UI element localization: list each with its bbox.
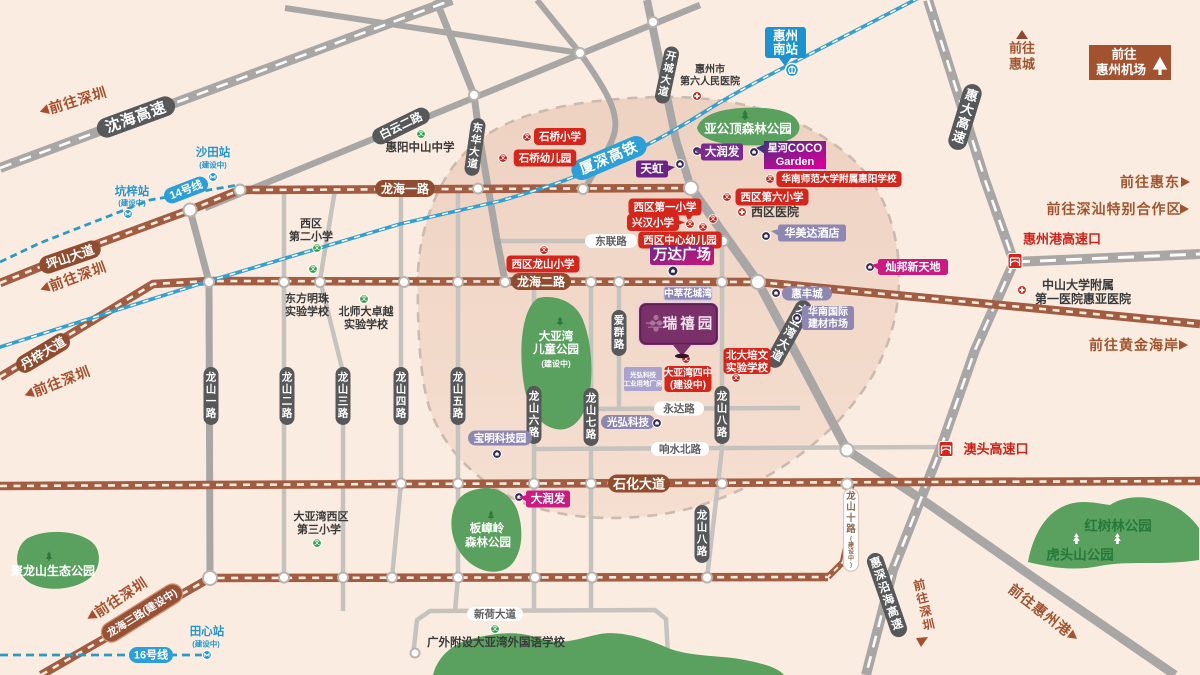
svg-text:山: 山 (586, 403, 597, 416)
svg-text:宝明科技园: 宝明科技园 (474, 432, 527, 445)
svg-text:七: 七 (586, 415, 597, 428)
svg-text:实验学校: 实验学校 (344, 317, 389, 331)
svg-text:永达路: 永达路 (662, 402, 695, 415)
svg-text:路: 路 (396, 406, 407, 419)
svg-text:(建设中): (建设中) (192, 639, 220, 649)
svg-text:西区龙山小学: 西区龙山小学 (512, 258, 575, 271)
svg-text:路: 路 (614, 337, 625, 350)
svg-text:第三小学: 第三小学 (297, 522, 341, 536)
svg-text:澳头高速口: 澳头高速口 (963, 442, 1028, 457)
svg-text:西区第六小学: 西区第六小学 (741, 191, 804, 204)
svg-text:光弘科技: 光弘科技 (606, 416, 649, 429)
svg-text:三: 三 (338, 395, 349, 407)
svg-text:路: 路 (586, 427, 597, 440)
svg-text:文: 文 (687, 219, 693, 227)
svg-text:爱: 爱 (614, 313, 625, 326)
svg-text:龙: 龙 (395, 370, 407, 383)
svg-text:(建设中): (建设中) (541, 359, 571, 369)
svg-text:文: 文 (724, 192, 730, 200)
svg-text:一: 一 (206, 395, 217, 407)
svg-text:华美达酒店: 华美达酒店 (785, 226, 840, 240)
svg-text:前往惠东: 前往惠东 (1120, 174, 1180, 190)
svg-text:龙: 龙 (528, 389, 540, 402)
svg-text:中: 中 (848, 554, 854, 562)
svg-text:四: 四 (396, 395, 407, 407)
svg-text:万达广场: 万达广场 (652, 246, 711, 264)
svg-text:路: 路 (338, 406, 349, 419)
svg-text:16号线: 16号线 (134, 648, 168, 662)
svg-text:工业用地厂房: 工业用地厂房 (624, 378, 664, 387)
svg-text:山: 山 (846, 501, 856, 513)
svg-text:聚龙山生态公园: 聚龙山生态公园 (10, 563, 95, 578)
svg-text:前往: 前往 (1111, 47, 1137, 62)
svg-text:龙: 龙 (205, 370, 217, 383)
svg-text:板嶂岭: 板嶂岭 (470, 521, 505, 535)
svg-text:西区: 西区 (300, 217, 322, 230)
svg-text:文: 文 (524, 132, 530, 140)
svg-text:前往深汕特别合作区: 前往深汕特别合作区 (1047, 201, 1182, 217)
svg-text:惠州: 惠州 (773, 28, 798, 43)
svg-text:山: 山 (717, 401, 728, 414)
svg-text:南站: 南站 (773, 42, 799, 57)
svg-text:森林公园: 森林公园 (465, 535, 511, 549)
svg-text:山: 山 (529, 401, 540, 414)
svg-text:西区第一小学: 西区第一小学 (634, 201, 697, 214)
svg-text:Garden: Garden (776, 156, 815, 168)
svg-text:): ) (850, 563, 852, 569)
svg-text:(: ( (850, 537, 852, 543)
svg-text:坑梓站: 坑梓站 (115, 184, 150, 198)
svg-text:八: 八 (696, 533, 708, 545)
svg-text:山: 山 (282, 382, 293, 395)
svg-text:龙海一路: 龙海一路 (381, 181, 430, 196)
svg-text:田心站: 田心站 (190, 624, 225, 638)
svg-text:华南国际: 华南国际 (808, 305, 848, 318)
svg-text:惠州港高速口: 惠州港高速口 (1023, 232, 1101, 247)
svg-text:文: 文 (500, 153, 506, 161)
svg-text:惠阳中山中学: 惠阳中山中学 (386, 140, 455, 154)
svg-text:大亚湾: 大亚湾 (539, 329, 574, 343)
svg-text:前往黄金海岸: 前往黄金海岸 (1089, 337, 1179, 353)
svg-text:文: 文 (767, 174, 773, 182)
svg-text:路: 路 (206, 406, 217, 419)
svg-text:第六人民医院: 第六人民医院 (680, 75, 740, 88)
svg-text:中山大学附属: 中山大学附属 (1042, 277, 1114, 292)
svg-text:华南师范大学附属惠阳学校: 华南师范大学附属惠阳学校 (781, 173, 897, 185)
svg-text:文: 文 (418, 129, 424, 137)
svg-text:设: 设 (848, 548, 854, 556)
svg-text:北大培文: 北大培文 (726, 348, 768, 361)
svg-text:新荷大道: 新荷大道 (474, 608, 516, 621)
svg-text:响水北路: 响水北路 (659, 443, 701, 456)
svg-text:五: 五 (453, 395, 464, 407)
svg-text:群: 群 (614, 325, 625, 338)
svg-text:十: 十 (846, 512, 856, 524)
svg-text:大亚湾西区: 大亚湾西区 (294, 509, 349, 523)
svg-text:路: 路 (697, 544, 708, 557)
svg-text:前往: 前往 (1009, 41, 1035, 56)
svg-text:兴汉小学: 兴汉小学 (632, 216, 674, 229)
svg-text:建材市场: 建材市场 (807, 317, 848, 330)
svg-text:西区医院: 西区医院 (751, 204, 799, 219)
svg-text:龙: 龙 (716, 389, 728, 402)
svg-text:龙: 龙 (845, 490, 856, 502)
svg-text:路: 路 (453, 406, 464, 419)
svg-text:石桥小学: 石桥小学 (538, 130, 581, 143)
svg-text:东方明珠: 东方明珠 (285, 291, 330, 305)
svg-text:文: 文 (310, 264, 316, 272)
svg-text:龙: 龙 (585, 391, 597, 404)
svg-text:中萃花城湾: 中萃花城湾 (664, 288, 712, 300)
svg-text:瑞禧园: 瑞禧园 (663, 315, 716, 333)
svg-text:路: 路 (846, 523, 856, 535)
svg-text:北师大卓越: 北师大卓越 (339, 304, 395, 318)
svg-text:西区中心幼儿园: 西区中心幼儿园 (643, 234, 717, 247)
svg-text:文: 文 (710, 214, 716, 222)
svg-text:红树林公园: 红树林公园 (1084, 518, 1152, 534)
svg-text:亚公顶森林公园: 亚公顶森林公园 (704, 121, 792, 136)
svg-text:虎头山公园: 虎头山公园 (1046, 547, 1114, 563)
svg-text:龙: 龙 (452, 370, 464, 383)
svg-text:石桥幼儿园: 石桥幼儿园 (518, 152, 572, 165)
svg-text:大润发: 大润发 (531, 492, 566, 506)
svg-text:第二小学: 第二小学 (289, 229, 333, 243)
svg-text:光弘科技: 光弘科技 (629, 370, 657, 379)
svg-text:文: 文 (492, 624, 498, 632)
svg-text:路: 路 (282, 406, 293, 419)
svg-text:惠州机场: 惠州机场 (1096, 62, 1146, 77)
svg-text:龙: 龙 (696, 508, 708, 521)
svg-text:第一医院惠亚医院: 第一医院惠亚医院 (1035, 291, 1131, 306)
svg-text:惠州市: 惠州市 (695, 63, 725, 76)
svg-text:山: 山 (697, 520, 708, 533)
svg-text:文: 文 (314, 243, 320, 251)
svg-text:八: 八 (716, 414, 728, 426)
svg-text:龙: 龙 (337, 370, 349, 383)
svg-text:沙田站: 沙田站 (196, 145, 231, 159)
svg-text:石化大道: 石化大道 (612, 477, 665, 492)
svg-text:惠丰城: 惠丰城 (791, 287, 823, 300)
svg-text:星河COCO: 星河COCO (768, 143, 823, 156)
svg-text:山: 山 (453, 382, 464, 395)
svg-text:二: 二 (282, 395, 293, 407)
svg-text:(建设中): (建设中) (199, 160, 227, 170)
svg-text:建: 建 (848, 541, 855, 549)
svg-text:广外附设大亚湾外国语学校: 广外附设大亚湾外国语学校 (427, 635, 565, 649)
svg-text:文: 文 (733, 373, 739, 381)
svg-text:山: 山 (338, 382, 349, 395)
svg-text:文: 文 (314, 538, 320, 546)
svg-text:实验学校: 实验学校 (726, 361, 768, 374)
svg-text:东联路: 东联路 (595, 235, 627, 248)
svg-text:文: 文 (700, 222, 706, 230)
svg-text:(建设中): (建设中) (118, 198, 146, 208)
svg-text:天虹: 天虹 (641, 162, 664, 176)
svg-text:龙: 龙 (281, 370, 293, 383)
svg-text:(建设中): (建设中) (670, 378, 706, 391)
svg-text:六: 六 (529, 413, 540, 426)
svg-text:实验学校: 实验学校 (285, 304, 330, 318)
svg-text:惠城: 惠城 (1009, 57, 1035, 72)
svg-text:灿邦新天地: 灿邦新天地 (886, 260, 941, 274)
svg-text:文: 文 (361, 294, 367, 302)
svg-text:路: 路 (717, 425, 728, 438)
svg-text:儿童公园: 儿童公园 (532, 342, 579, 356)
svg-text:大亚湾四中: 大亚湾四中 (664, 366, 713, 379)
svg-text:山: 山 (206, 382, 217, 395)
svg-text:大润发: 大润发 (705, 145, 740, 159)
svg-text:文: 文 (541, 245, 547, 253)
svg-text:山: 山 (396, 382, 407, 395)
svg-text:龙海二路: 龙海二路 (517, 274, 566, 289)
